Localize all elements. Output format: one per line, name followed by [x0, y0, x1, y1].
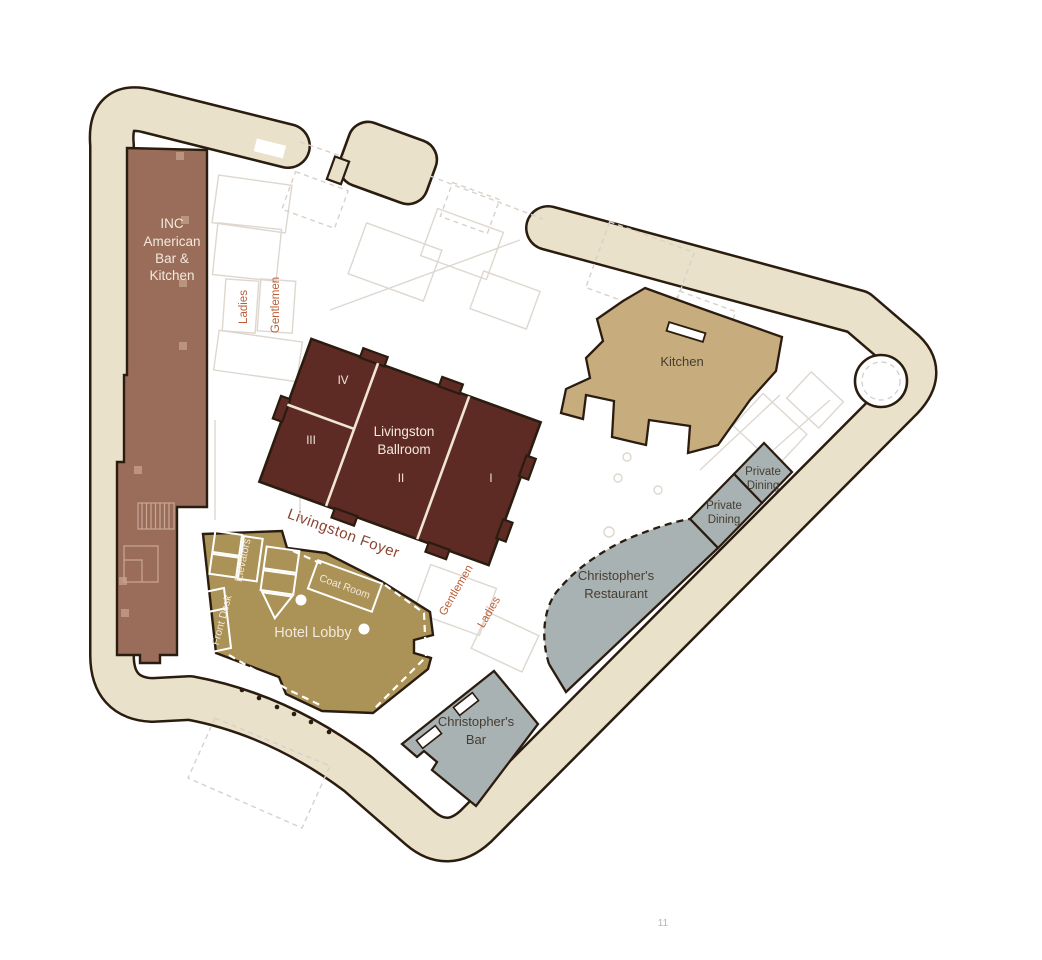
private-dining-1-line2: Dining — [747, 480, 780, 492]
hotel-lobby-label: Hotel Lobby — [274, 625, 352, 641]
gentlemen-lower-label: Gentlemen — [437, 563, 476, 618]
private-dining-1-line1: Private — [745, 466, 781, 478]
floor-plan-page: INC American Bar & Kitchen Ladies Gentle… — [0, 0, 1042, 960]
lobby-column-2 — [359, 624, 370, 635]
tower — [855, 355, 907, 407]
ballroom-section-2: II — [398, 473, 404, 485]
detached-wall-block — [327, 114, 443, 212]
inc-label-line1: INC — [160, 216, 184, 231]
lobby-column-1 — [296, 595, 307, 606]
ballroom-name-line2: Ballroom — [377, 442, 430, 457]
area-inc-american-bar-kitchen: INC American Bar & Kitchen — [117, 148, 207, 663]
area-livingston-ballroom: Livingston Ballroom I II III IV — [248, 327, 551, 576]
private-dining-2-line2: Dining — [708, 514, 741, 526]
ballroom-name-line1: Livingston — [374, 424, 435, 439]
area-kitchen: Kitchen — [561, 288, 782, 453]
inc-label-line2: American — [143, 234, 200, 249]
bar-label-line1: Christopher's — [438, 714, 515, 729]
ladies-lower-label: Ladies — [476, 595, 503, 631]
kitchen-label: Kitchen — [660, 354, 703, 369]
restaurant-label-line1: Christopher's — [578, 568, 655, 583]
page-number: 11 — [658, 918, 669, 929]
ladies-upper-label: Ladies — [238, 290, 250, 324]
floor-plan-drawing: INC American Bar & Kitchen Ladies Gentle… — [0, 0, 1042, 960]
ballroom-section-1: I — [489, 473, 492, 485]
bar-label-line2: Bar — [466, 732, 487, 747]
ballroom-section-3: III — [306, 435, 316, 447]
area-hotel-lobby: Coat Room Hotel Lobby Elevators Front De… — [203, 531, 433, 713]
inc-label-line3: Bar & — [155, 251, 189, 266]
inc-label-line4: Kitchen — [149, 268, 194, 283]
restaurant-label-line2: Restaurant — [584, 586, 648, 601]
private-dining-2-line1: Private — [706, 500, 742, 512]
ballroom-section-4: IV — [338, 375, 349, 387]
gentlemen-upper-label: Gentlemen — [270, 277, 282, 333]
